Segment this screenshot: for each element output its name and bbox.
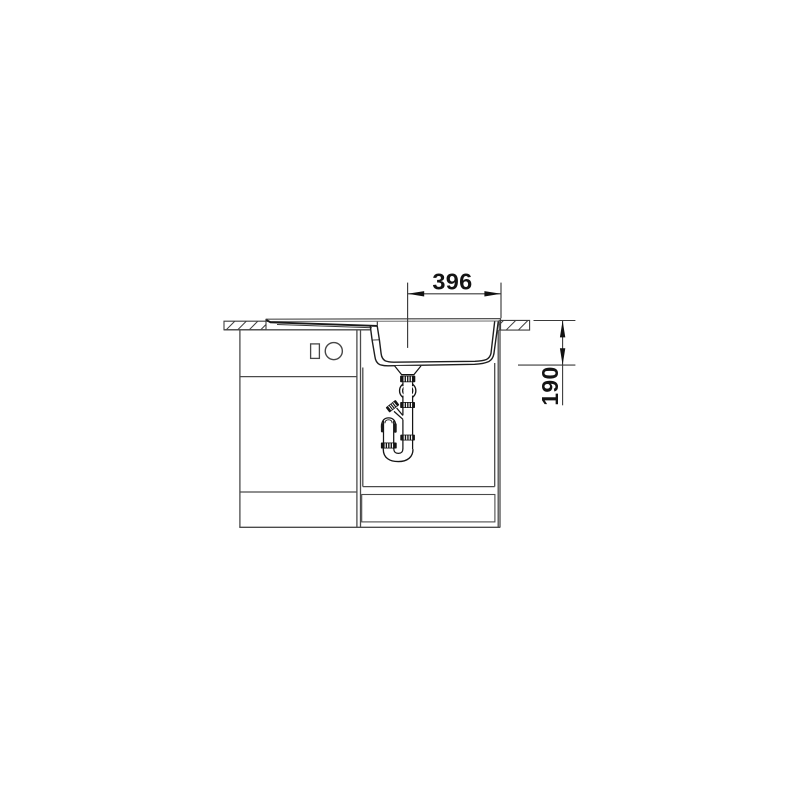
svg-text:396: 396 (432, 269, 472, 295)
svg-text:190: 190 (537, 366, 563, 405)
